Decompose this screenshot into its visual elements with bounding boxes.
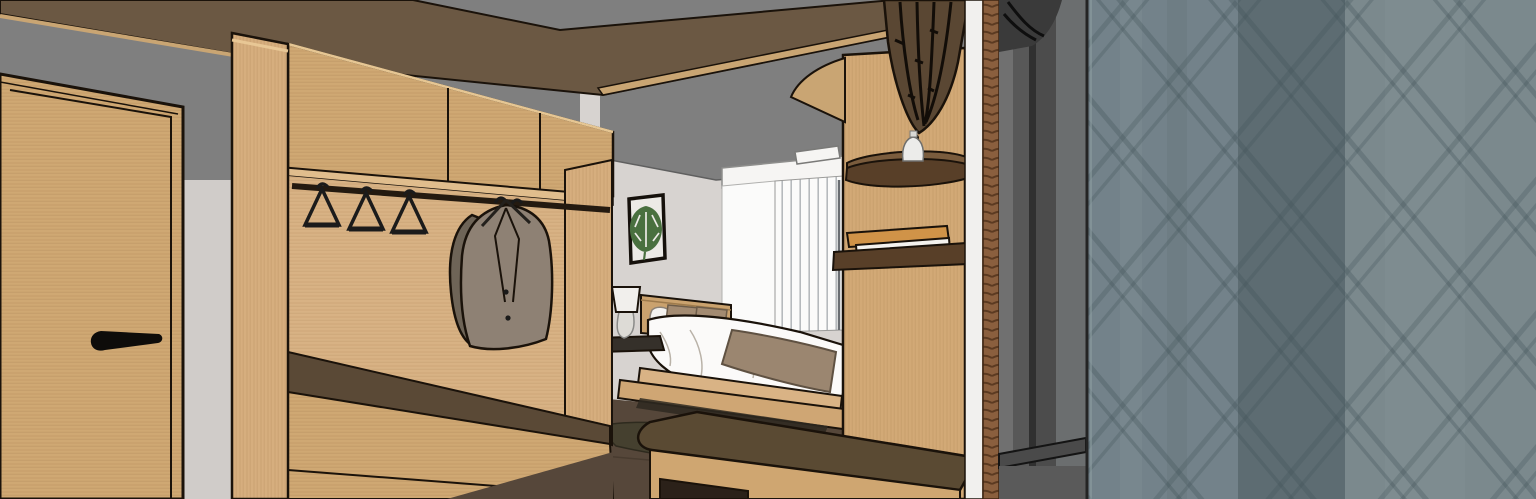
window-blinds-striped: [775, 176, 843, 332]
wardrobe-end-panel: [565, 160, 612, 445]
wardrobe-pillar: [232, 33, 288, 499]
render-viewport: 3D interior render: hotel room entry wit…: [0, 0, 1536, 499]
coat-button-1: [503, 289, 508, 294]
frame-sill-base: [999, 466, 1086, 499]
coat-button-2: [505, 315, 510, 320]
interior-render: 3D interior render: hotel room entry wit…: [0, 0, 1536, 499]
glazed-partition: [1086, 0, 1536, 499]
frame-band-1: [999, 0, 1013, 499]
hanging-coats: [450, 198, 552, 349]
lattice-diagonal-b: [1086, 0, 1536, 499]
frame-band-5: [1056, 0, 1086, 499]
lamp-shade: [612, 287, 640, 312]
round-shelf-front: [846, 159, 968, 187]
partition-frame: [999, 0, 1086, 499]
coat-front: [461, 205, 552, 349]
lamp-body: [617, 312, 634, 338]
frame-band-4: [1036, 0, 1056, 499]
frame-band-2: [1013, 0, 1029, 499]
rope-trim: [983, 0, 999, 499]
frame-band-3: [1029, 0, 1036, 499]
entry-door: [0, 74, 183, 499]
vase-neck: [910, 131, 917, 137]
partition-column: [833, 48, 968, 499]
wall-edge: [965, 0, 983, 499]
wall-art-monstera: [629, 195, 665, 263]
